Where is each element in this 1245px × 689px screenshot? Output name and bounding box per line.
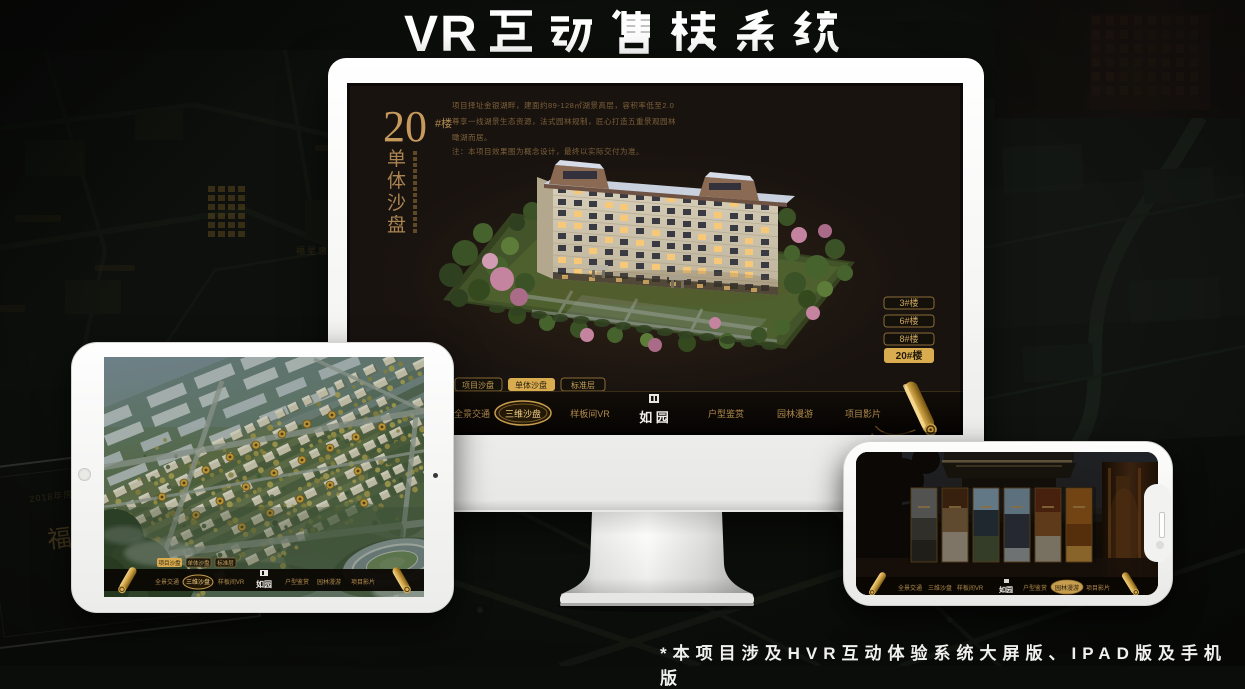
svg-text:户型鉴赏: 户型鉴赏 <box>708 408 744 419</box>
svg-text:样板间VR: 样板间VR <box>570 408 610 419</box>
svg-text:样板间VR: 样板间VR <box>218 578 245 586</box>
svg-text:3#楼: 3#楼 <box>899 297 918 308</box>
svg-text:三维沙盘: 三维沙盘 <box>186 578 210 586</box>
svg-text:全景交通: 全景交通 <box>898 584 922 592</box>
svg-text:尊享一线湖景生态资源，法式园林规制，匠心打造五重景观园林: 尊享一线湖景生态资源，法式园林规制，匠心打造五重景观园林 <box>452 116 676 126</box>
svg-text:沙: 沙 <box>387 193 406 214</box>
svg-text:标准层: 标准层 <box>217 559 234 567</box>
svg-text:单: 单 <box>387 148 406 170</box>
svg-text:盘: 盘 <box>387 214 406 236</box>
svg-text:瞰湖而居。: 瞰湖而居。 <box>452 132 492 142</box>
svg-text:标准层: 标准层 <box>571 380 595 390</box>
svg-text:#楼: #楼 <box>435 116 452 130</box>
svg-text:单体沙盘: 单体沙盘 <box>515 380 547 390</box>
svg-text:如园: 如园 <box>256 579 272 589</box>
svg-text:项目沙盘: 项目沙盘 <box>158 559 181 567</box>
svg-text:20: 20 <box>383 102 427 151</box>
svg-text:全景交通: 全景交通 <box>454 408 490 419</box>
svg-text:项目沙盘: 项目沙盘 <box>462 380 494 390</box>
svg-text:三维沙盘: 三维沙盘 <box>505 408 541 419</box>
svg-text:如园: 如园 <box>999 585 1013 594</box>
svg-text:如 园: 如 园 <box>639 410 669 425</box>
svg-text:园林漫游: 园林漫游 <box>317 578 341 586</box>
svg-text:园林漫游: 园林漫游 <box>777 408 813 419</box>
svg-text:VR: VR <box>404 5 479 58</box>
svg-text:全景交通: 全景交通 <box>155 578 179 586</box>
svg-text:单体沙盘: 单体沙盘 <box>187 559 210 567</box>
svg-text:项目影片: 项目影片 <box>845 408 881 419</box>
svg-text:项目影片: 项目影片 <box>1086 584 1110 592</box>
svg-text:8#楼: 8#楼 <box>899 333 918 344</box>
svg-text:项目影片: 项目影片 <box>351 578 375 586</box>
svg-text:户型鉴赏: 户型鉴赏 <box>1023 584 1047 592</box>
svg-text:注：本项目效果图为概念设计，最终以实际交付为准。: 注：本项目效果图为概念设计，最终以实际交付为准。 <box>452 146 644 156</box>
svg-text:三维沙盘: 三维沙盘 <box>928 584 952 592</box>
svg-text:6#楼: 6#楼 <box>899 315 918 326</box>
svg-text:20#楼: 20#楼 <box>896 349 923 362</box>
svg-text:体: 体 <box>387 170 406 192</box>
svg-text:园林漫游: 园林漫游 <box>1055 584 1079 592</box>
svg-text:样板间VR: 样板间VR <box>957 584 984 592</box>
svg-text:户型鉴赏: 户型鉴赏 <box>285 578 309 586</box>
svg-text:项目择址金银湖畔，建面约89-128㎡湖景高层，容积率低至2: 项目择址金银湖畔，建面约89-128㎡湖景高层，容积率低至2.0 <box>452 100 674 110</box>
